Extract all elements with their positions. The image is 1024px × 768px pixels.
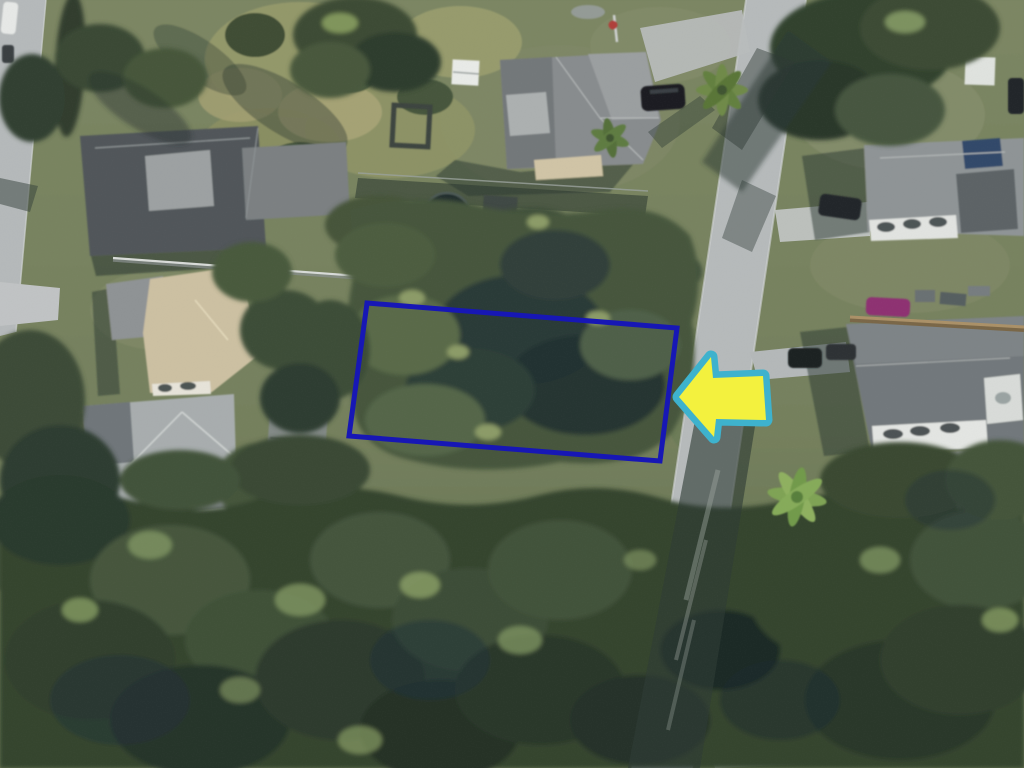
aerial-photo-canvas — [0, 0, 1024, 768]
photo-grain — [0, 0, 1024, 768]
aerial-photo — [0, 0, 1024, 768]
